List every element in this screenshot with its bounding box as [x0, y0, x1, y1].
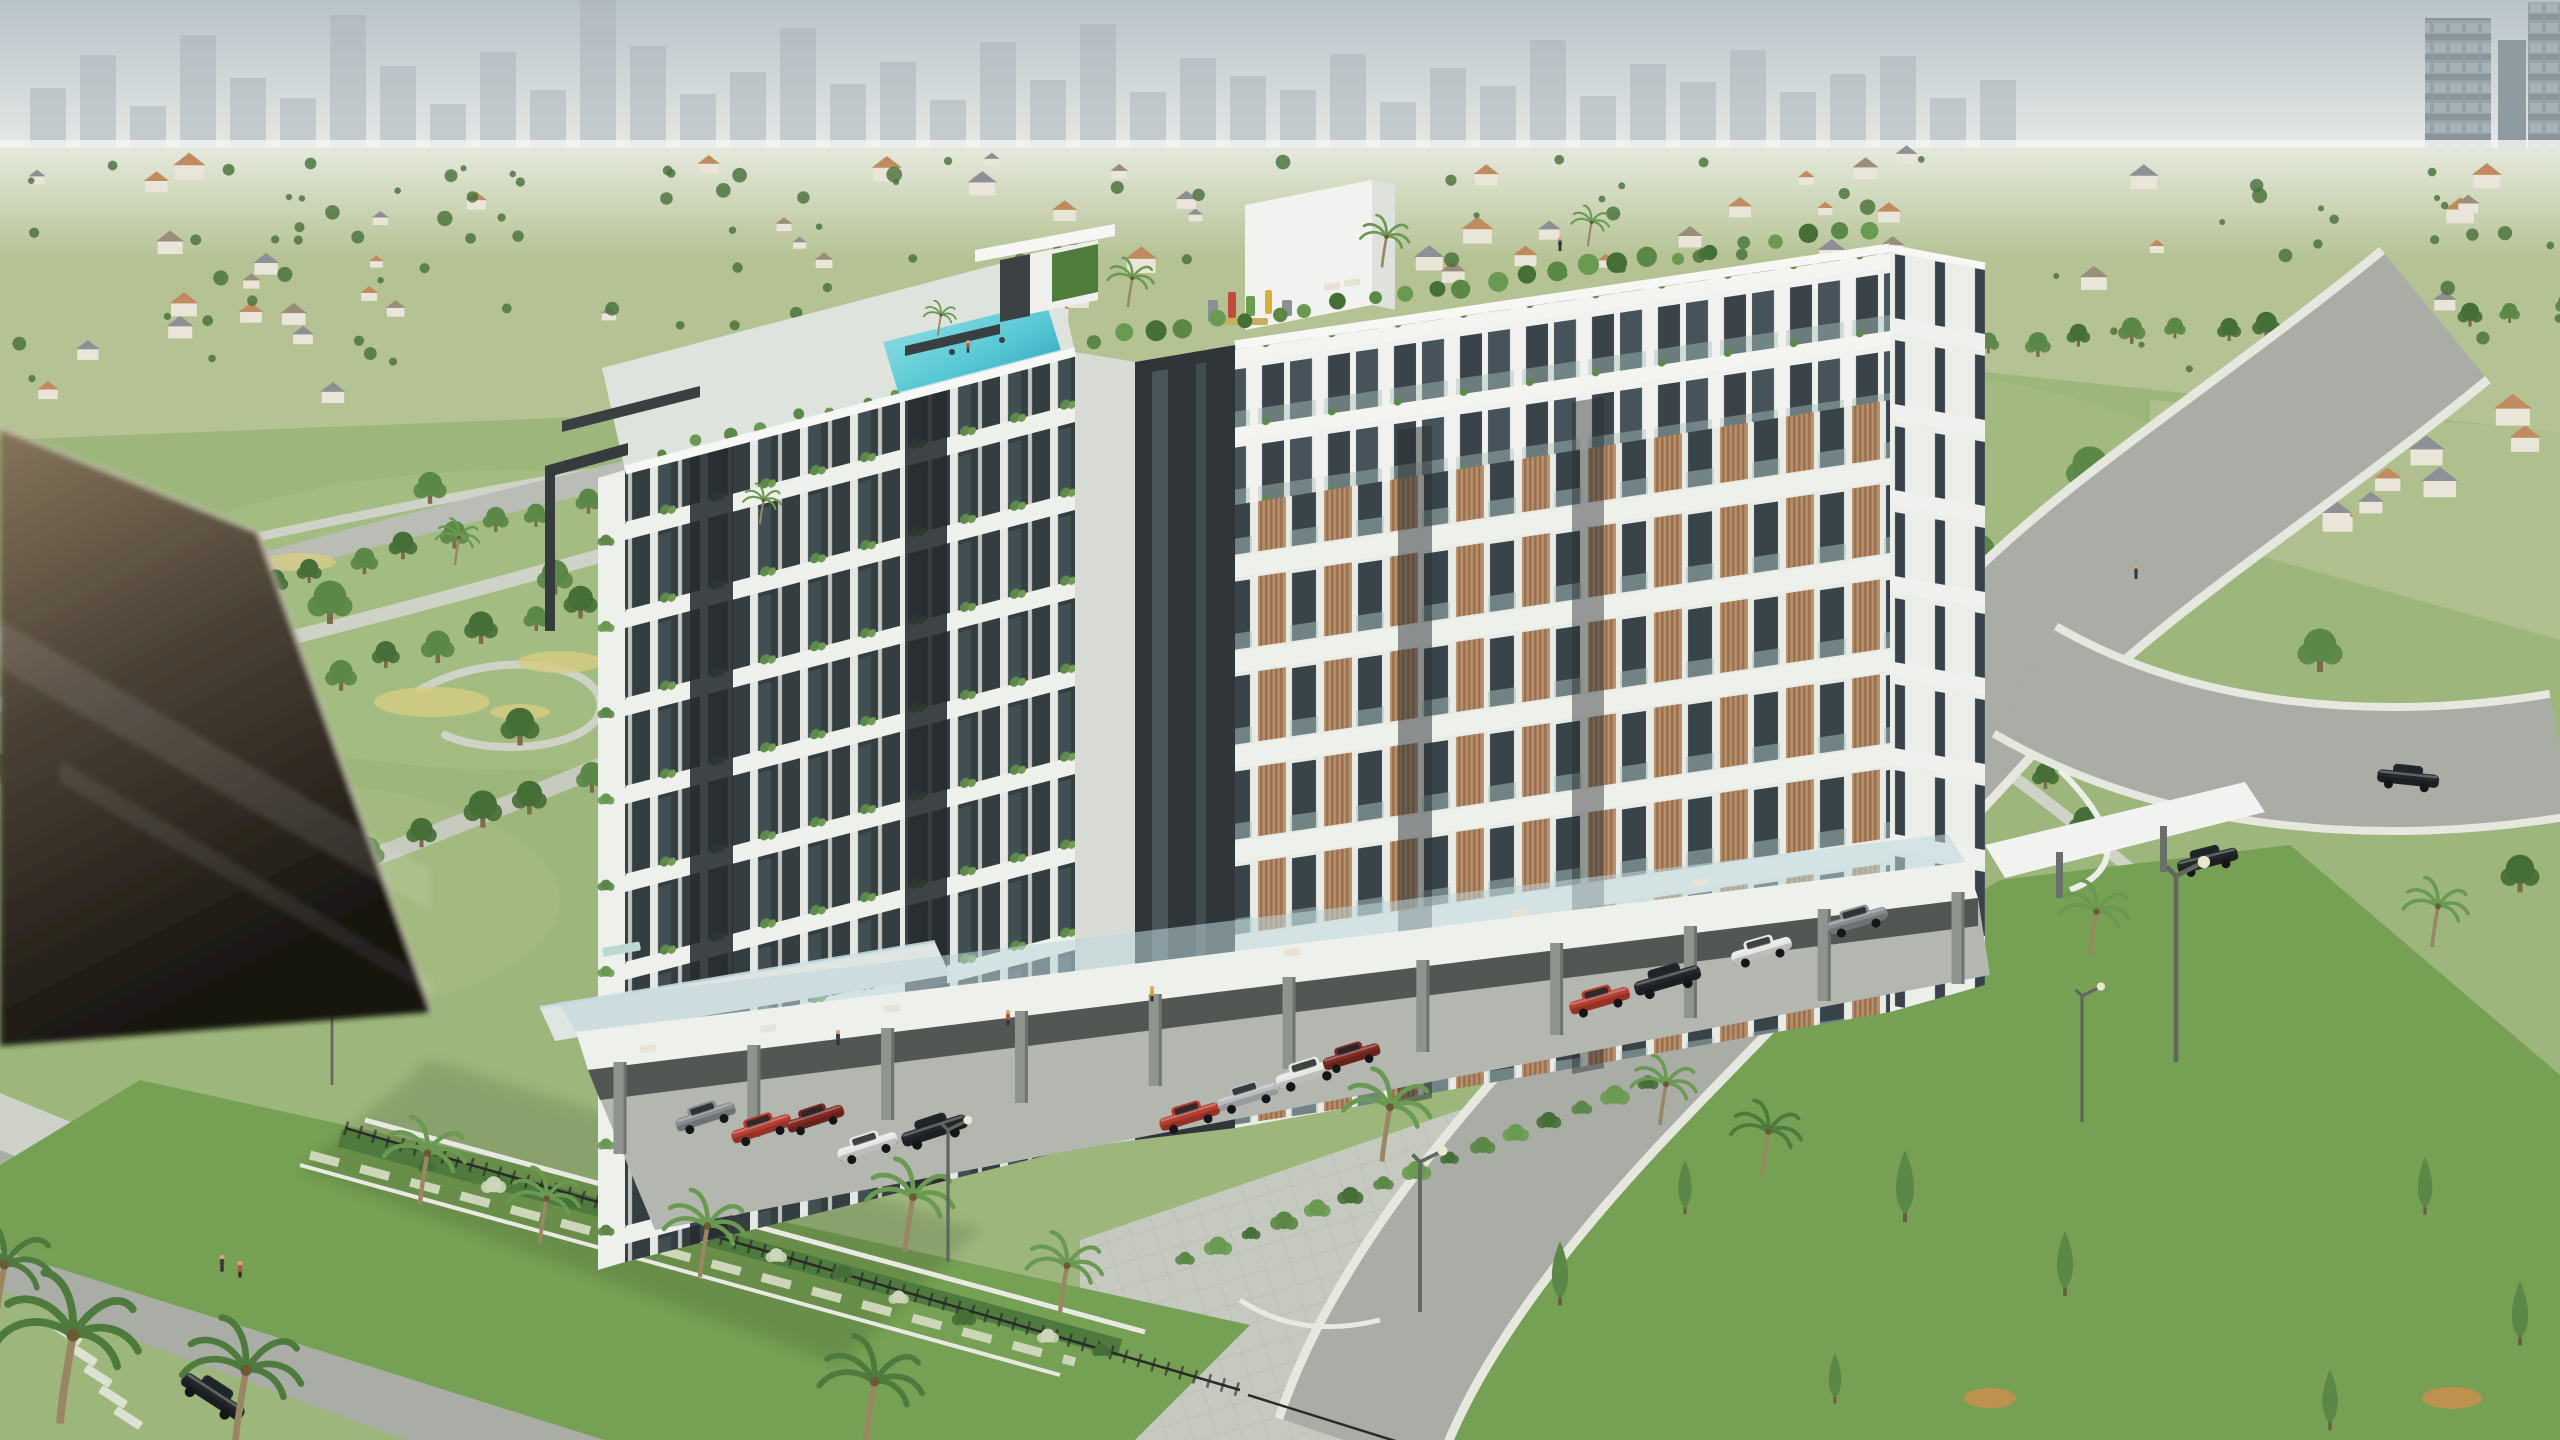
rail-planter [690, 434, 702, 446]
distant-tree [294, 235, 303, 244]
playground-equipment [1246, 296, 1255, 316]
roof-planting [1115, 323, 1133, 341]
distant-tree [2547, 242, 2555, 250]
skyline-tower [1530, 40, 1566, 150]
roof-planting [1518, 265, 1536, 283]
distant-tree [497, 213, 505, 221]
distant-tree [325, 205, 340, 220]
roof-planting [1861, 222, 1879, 240]
distant-tree [202, 315, 213, 326]
skyline-tower [1830, 74, 1866, 150]
distant-tree [305, 158, 317, 170]
distant-tree [732, 262, 742, 272]
distant-tree [394, 187, 401, 194]
skyline-tower [180, 35, 216, 150]
distant-tree [1918, 156, 1925, 163]
roof-planting [1768, 234, 1783, 249]
distant-tree [247, 295, 257, 305]
steel-pergola-post [545, 466, 555, 631]
playground-equipment [1265, 290, 1272, 314]
roof-planting [1329, 293, 1346, 310]
distant-tree [223, 164, 235, 176]
distant-tree [2434, 195, 2440, 201]
distant-tree [190, 234, 201, 245]
vertical-garden-wall [1052, 244, 1098, 302]
roof-planting [1451, 280, 1470, 299]
roof-planting [1397, 286, 1413, 302]
roof-planting [1799, 224, 1818, 243]
distant-tree [2466, 228, 2478, 240]
aerial-render-canvas [0, 0, 2560, 1440]
roof-penthouse-side [1372, 180, 1395, 310]
skyline-tower [230, 78, 266, 150]
roof-planting [1237, 313, 1252, 328]
roof-planting [1429, 281, 1445, 297]
distant-tree [1618, 182, 1625, 189]
skyline-tower [630, 46, 666, 150]
distant-tree [286, 194, 292, 200]
distant-tree [1598, 196, 1605, 203]
skyline-tower [1880, 56, 1916, 150]
distant-tree [164, 313, 171, 320]
person [2134, 565, 2138, 579]
roof-planting [1637, 247, 1657, 267]
dark-slat-panel [1000, 254, 1030, 322]
distant-tree [732, 168, 747, 183]
skyline-tower [1980, 80, 2016, 150]
distant-tree [516, 177, 525, 186]
distant-tree [354, 336, 364, 346]
distant-tree [1839, 188, 1850, 199]
distant-tree [2313, 239, 2322, 248]
distant-tree [2250, 179, 2263, 192]
dry-shrub [2422, 1387, 2482, 1409]
distant-tree [605, 302, 619, 316]
distant-tree [908, 254, 917, 263]
flower-bed [374, 687, 490, 717]
distant-tree [816, 223, 823, 230]
roof-planting [1297, 304, 1311, 318]
distant-tree [676, 321, 685, 330]
roof-planting [1547, 261, 1567, 281]
skyline-tower [1330, 54, 1366, 150]
distant-tree [823, 283, 832, 292]
distant-tree [420, 263, 430, 273]
distant-tree [2138, 342, 2144, 348]
distant-tree [1276, 155, 1291, 170]
distant-tree [1444, 252, 1459, 267]
distant-tree [2428, 168, 2437, 177]
skyline-tower [380, 66, 416, 150]
distant-tree [2441, 202, 2448, 209]
distant-tree [1736, 249, 1748, 261]
canopy-post [2160, 826, 2167, 872]
distant-tree [208, 355, 216, 363]
distant-tree [1699, 157, 1709, 167]
pool-swimmer [999, 337, 1005, 343]
roof-planting [1369, 291, 1382, 304]
carport-column-shade [1159, 994, 1162, 1086]
skyline-tower [1230, 76, 1266, 150]
distant-tree [2318, 205, 2324, 211]
distant-tree [1860, 199, 1876, 215]
distant-tree [299, 195, 305, 201]
distant-tree [729, 227, 736, 234]
distant-tree [213, 270, 228, 285]
distant-tree [377, 277, 383, 283]
carport-column-shade [1025, 1011, 1028, 1103]
distant-tree [730, 320, 740, 330]
flower-bed [518, 651, 602, 673]
playground-equipment [1228, 292, 1236, 318]
distant-tree [1445, 175, 1456, 186]
skyline-tower [1730, 50, 1766, 150]
distant-tree [2053, 273, 2059, 279]
distant-tree [437, 211, 452, 226]
distant-tree [2279, 249, 2293, 263]
distant-tree [2186, 365, 2193, 372]
distant-tree [12, 337, 26, 351]
distant-tree [944, 157, 952, 165]
skyline-tower [1680, 82, 1716, 150]
distant-tree [1606, 206, 1620, 220]
distant-tree [2110, 327, 2118, 335]
person [1150, 986, 1154, 1001]
distant-tree [294, 222, 304, 232]
distant-tree [1111, 181, 1124, 194]
skyline-tower [1430, 68, 1466, 150]
roof-planting [1209, 310, 1226, 327]
roof-planting [1087, 335, 1101, 349]
roof-planting [1831, 222, 1848, 239]
roof-planting [1273, 308, 1288, 323]
distant-tree [886, 167, 902, 183]
carport-column-shade [624, 1062, 627, 1154]
carport-column-shade [1560, 943, 1563, 1035]
distant-tree [1182, 254, 1192, 264]
distant-tree [2430, 235, 2439, 244]
distant-tree [509, 171, 516, 178]
skyline-tower [480, 52, 516, 150]
distant-tree [29, 228, 39, 238]
dry-shrub [1964, 1388, 2016, 1408]
distant-tree [1554, 155, 1564, 165]
roof-planting [1606, 252, 1627, 273]
distant-tree [663, 166, 673, 176]
person [238, 1261, 243, 1278]
skyline-tower [880, 62, 916, 150]
canopy-post [2056, 852, 2063, 898]
skyline-tower [1030, 80, 1066, 150]
distant-tree [277, 267, 292, 282]
distant-tree [465, 233, 476, 244]
roof-planting [1578, 254, 1599, 275]
skyline-tower [1630, 64, 1666, 150]
distant-tree [351, 231, 364, 244]
architectural-rendering [0, 0, 2560, 1440]
distant-tree [28, 375, 35, 382]
skyline-tower [330, 15, 366, 150]
distant-tree [364, 347, 377, 360]
distant-tree [512, 230, 524, 242]
distant-tree [2329, 214, 2338, 223]
roof-planting [1146, 320, 1167, 341]
distant-tree [389, 358, 397, 366]
roof-planting [1672, 253, 1684, 265]
distant-tree [2219, 219, 2225, 225]
distant-tree [108, 161, 118, 171]
distant-tree [2476, 331, 2489, 344]
distant-tree [445, 169, 458, 182]
carport-column-shade [1962, 892, 1965, 984]
skyline-tower [980, 42, 1016, 150]
rail-planter [793, 408, 804, 419]
carport-column-shade [1293, 977, 1296, 1069]
distant-tree [797, 191, 809, 203]
skyline-tower [730, 72, 766, 150]
pool-swimmer [949, 349, 955, 355]
carport-column-shade [1426, 960, 1429, 1052]
distant-tree [271, 235, 279, 243]
skyline-tower [780, 28, 816, 150]
distant-tree [2498, 226, 2512, 240]
distant-tree [28, 177, 35, 184]
skyline-tower [580, 0, 616, 150]
roof-planting [1488, 272, 1508, 292]
distant-tree [2440, 281, 2455, 296]
distant-tree [467, 191, 478, 202]
skyline-tower [1180, 58, 1216, 150]
roof-planting [1172, 319, 1191, 338]
distant-tree [502, 304, 512, 314]
skyline-tower [80, 55, 116, 150]
roof-planting [1702, 245, 1717, 260]
distant-tree [1192, 189, 1204, 201]
carport-column-shade [891, 1028, 894, 1120]
distant-tree [716, 183, 731, 198]
skyline-tower [1080, 24, 1116, 150]
distant-tree [1474, 212, 1480, 218]
person [220, 1255, 225, 1272]
roof-planting [1737, 236, 1750, 249]
distant-tree [460, 165, 466, 171]
distant-tree [660, 192, 673, 205]
